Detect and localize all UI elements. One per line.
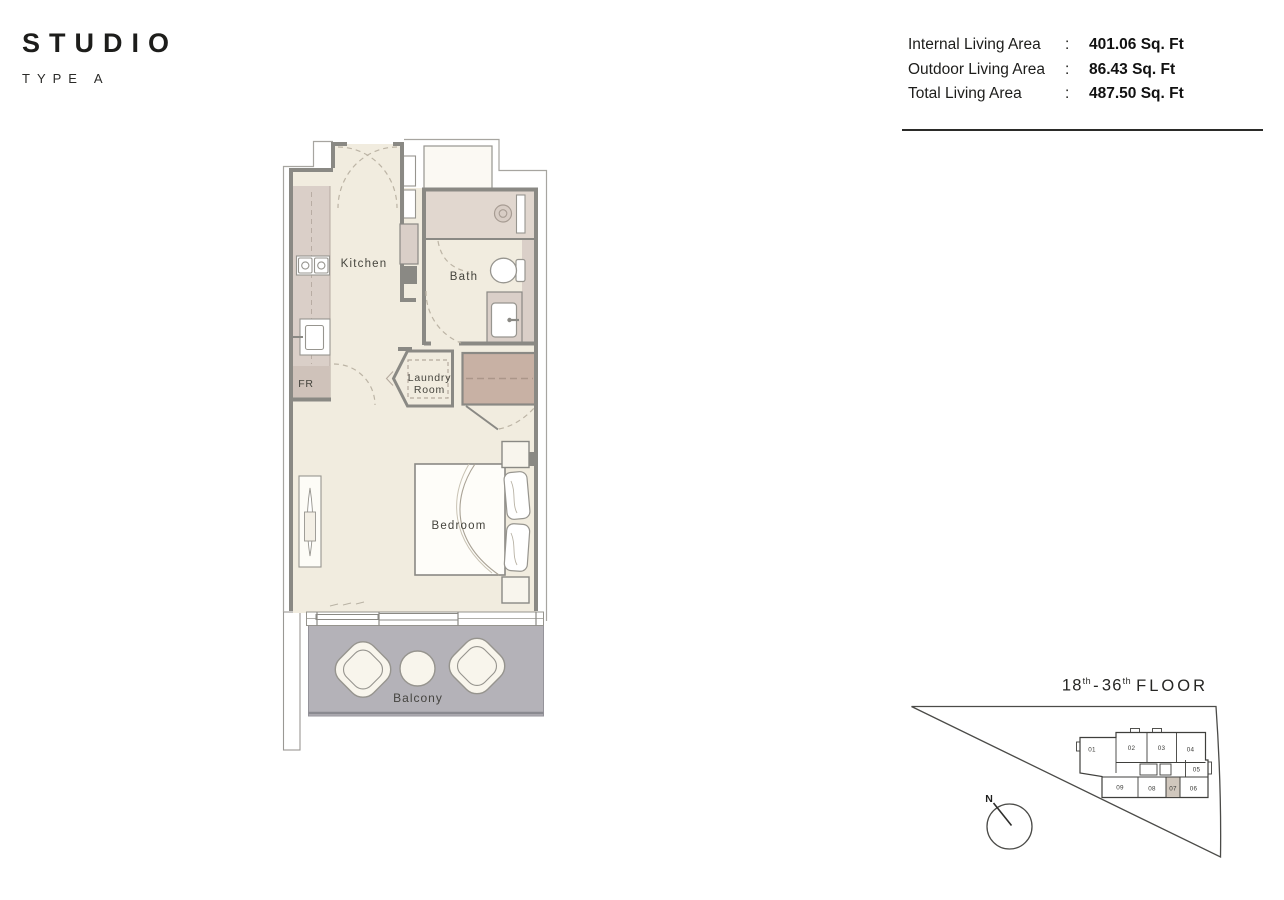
toilet-icon <box>491 258 526 283</box>
room-label-laundry: Room <box>414 384 445 396</box>
stove-icon <box>297 256 330 275</box>
area-label: Internal Living Area <box>908 33 1065 58</box>
balcony-table <box>400 651 435 686</box>
area-table: Internal Living Area : 401.06 Sq. Ft Out… <box>908 33 1184 107</box>
unit-label: 04 <box>1187 747 1195 754</box>
entry-shelf <box>404 156 416 186</box>
unit-label: 01 <box>1088 747 1096 754</box>
unit-label: 09 <box>1116 785 1124 792</box>
room-label-balcony: Balcony <box>393 691 443 705</box>
balcony-window-band <box>307 612 544 626</box>
room-label-bedroom: Bedroom <box>431 520 486 532</box>
wall-block <box>530 452 537 466</box>
hall-pilaster <box>400 224 418 264</box>
table-row: Total Living Area : 487.50 Sq. Ft <box>908 82 1184 107</box>
unit-label: 05 <box>1193 767 1201 774</box>
compass-north-label: N <box>985 793 993 805</box>
bath-sink-icon <box>492 303 520 337</box>
shower-niche <box>517 195 526 233</box>
site-key-plan: 01 02 03 04 05 06 07 08 09 N <box>900 655 1280 870</box>
area-colon: : <box>1065 82 1089 107</box>
unit-label: 06 <box>1190 786 1198 793</box>
table-row: Internal Living Area : 401.06 Sq. Ft <box>908 33 1184 58</box>
area-label: Total Living Area <box>908 82 1065 107</box>
room-label-laundry: Laundry <box>408 372 452 384</box>
compass-icon: N <box>985 793 1032 849</box>
table-row: Outdoor Living Area : 86.43 Sq. Ft <box>908 58 1184 83</box>
service-closet <box>424 146 492 189</box>
area-value: 487.50 Sq. Ft <box>1089 82 1184 107</box>
wall-block <box>400 266 417 284</box>
nightstand <box>502 577 529 603</box>
area-label: Outdoor Living Area <box>908 58 1065 83</box>
area-colon: : <box>1065 33 1089 58</box>
tv-unit <box>299 476 321 567</box>
nightstand <box>502 442 529 468</box>
shower-drain-icon <box>495 205 512 222</box>
area-value: 401.06 Sq. Ft <box>1089 33 1184 58</box>
unit-label: 03 <box>1158 745 1166 752</box>
page-title: STUDIO <box>22 28 178 59</box>
entry-shelf <box>404 190 416 218</box>
plan-title-block: STUDIO TYPE A <box>22 28 178 86</box>
bath-wall-finish <box>522 240 536 344</box>
unit-label: 02 <box>1128 745 1136 752</box>
divider-rule <box>902 129 1263 131</box>
unit-label: 07 <box>1169 786 1177 793</box>
area-colon: : <box>1065 58 1089 83</box>
room-label-kitchen: Kitchen <box>341 258 388 270</box>
page-subtitle: TYPE A <box>22 71 178 86</box>
unit-label: 08 <box>1148 786 1156 793</box>
room-label-bath: Bath <box>450 271 478 283</box>
floorplan-drawing: Kitchen Bath Laundry Room Bedroom FR Bal… <box>280 125 565 765</box>
room-label-fridge: FR <box>298 378 314 390</box>
area-value: 86.43 Sq. Ft <box>1089 58 1184 83</box>
brochure-page: { "header": { "title": "STUDIO", "subtit… <box>0 0 1284 900</box>
exterior-wall-strip <box>284 612 301 750</box>
